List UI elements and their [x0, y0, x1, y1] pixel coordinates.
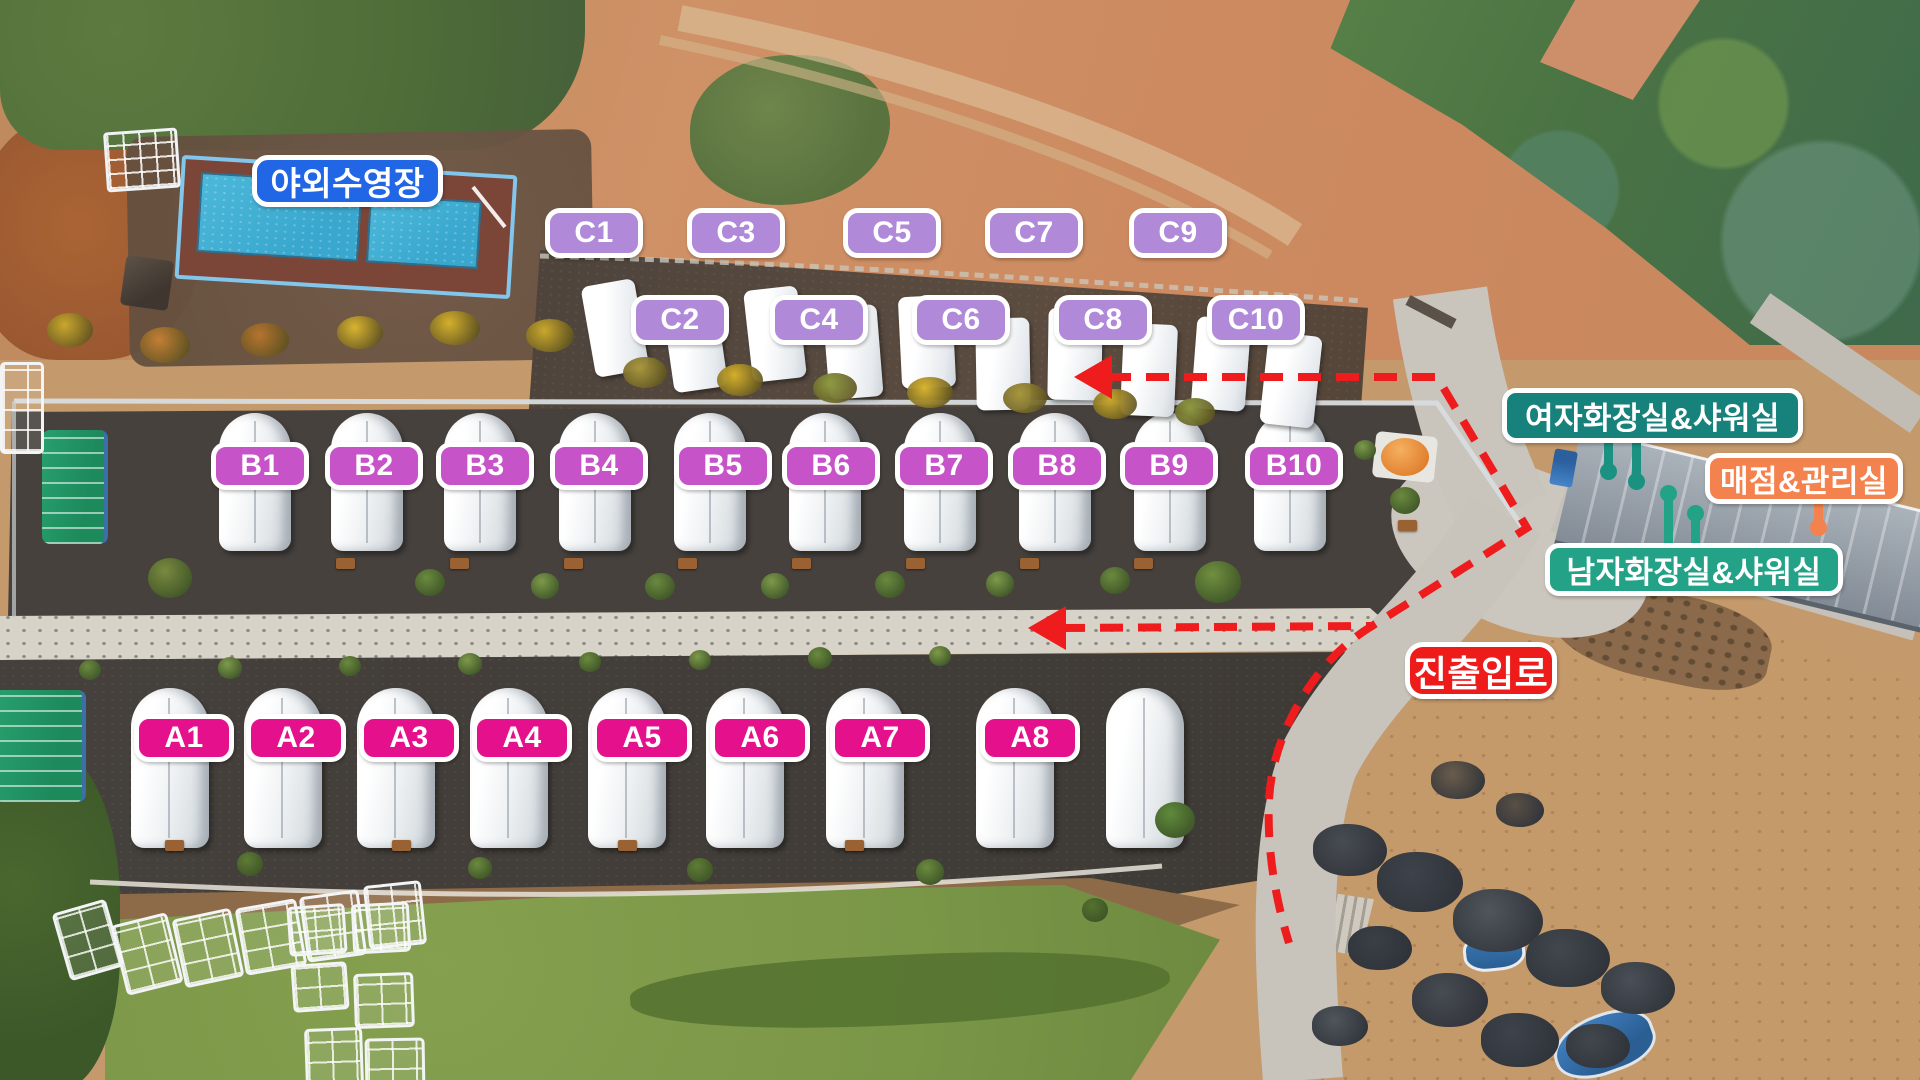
picnic-table-b1: [450, 558, 469, 569]
green-quonset-building-lower: [0, 690, 86, 802]
site-badge-c7: C7: [985, 208, 1083, 258]
outdoor-pool-badge: 야외수영장: [252, 155, 443, 207]
yellow-tree-8: [813, 373, 857, 403]
site-badge-c9: C9: [1129, 208, 1227, 258]
pergola-frame: [103, 127, 181, 192]
green-tree-17: [237, 852, 263, 875]
green-tree-9: [79, 660, 101, 680]
storage-shed: [120, 255, 174, 311]
yellow-tree-12: [1175, 398, 1215, 426]
connector-men-1-dot: [1660, 485, 1677, 502]
tent-a7: [826, 688, 904, 848]
tent-a1: [131, 688, 209, 848]
stored-frame-8: [290, 961, 349, 1013]
yellow-tree-1: [140, 327, 190, 363]
campground-aerial-map: 야외수영장 A1A2A3A4A5A6A7A8B1B2B3B4B5B6B7B8B9…: [0, 0, 1920, 1080]
store-office-badge: 매점&관리실: [1705, 453, 1903, 504]
green-tree-6: [986, 571, 1014, 596]
shore-rock-3: [1526, 929, 1610, 988]
green-tree-16: [929, 646, 951, 666]
picnic-table-b5: [906, 558, 925, 569]
yellow-tree-5: [526, 319, 574, 352]
site-badge-b3: B3: [436, 442, 534, 490]
site-badge-a7: A7: [830, 714, 930, 762]
tent-a5: [588, 688, 666, 848]
yellow-tree-2: [241, 323, 289, 357]
picnic-table-b6: [1020, 558, 1039, 569]
site-badge-c10: C10: [1207, 295, 1305, 345]
picnic-table-a2: [618, 840, 637, 851]
site-badge-a5: A5: [592, 714, 692, 762]
picnic-table-a3: [845, 840, 864, 851]
green-tree-12: [458, 653, 482, 675]
stored-frame-left-edge: [0, 362, 44, 454]
tent-a3: [357, 688, 435, 848]
orange-dome-tent: [1381, 438, 1429, 476]
men-restroom-badge: 남자화장실&샤워실: [1545, 543, 1843, 596]
connector-women-2-dot: [1628, 473, 1645, 490]
green-tree-23: [1354, 440, 1376, 460]
site-badge-c3: C3: [687, 208, 785, 258]
picnic-table-b7: [1134, 558, 1153, 569]
tent-a8: [976, 688, 1054, 848]
yellow-tree-3: [337, 316, 383, 349]
site-badge-a4: A4: [472, 714, 572, 762]
connector-store-dot: [1810, 519, 1827, 536]
picnic-table-b2: [564, 558, 583, 569]
site-badge-c5: C5: [843, 208, 941, 258]
site-badge-c1: C1: [545, 208, 643, 258]
green-tree-5: [875, 571, 905, 598]
yellow-tree-0: [47, 313, 93, 347]
green-tree-3: [645, 573, 675, 600]
site-badge-a3: A3: [359, 714, 459, 762]
yellow-tree-11: [1093, 389, 1137, 419]
picnic-table-a0: [165, 840, 184, 851]
green-tree-19: [687, 858, 713, 881]
tent-a4: [470, 688, 548, 848]
site-badge-b4: B4: [550, 442, 648, 490]
women-restroom-badge: 여자화장실&샤워실: [1502, 388, 1803, 443]
shore-rock-10: [1431, 761, 1485, 799]
site-badge-a6: A6: [710, 714, 810, 762]
green-tree-4: [761, 573, 789, 598]
yellow-tree-9: [907, 377, 953, 408]
stored-frame-11: [365, 1037, 426, 1080]
site-badge-a1: A1: [134, 714, 234, 762]
shore-rock-11: [1496, 793, 1544, 827]
green-tree-2: [531, 573, 559, 598]
connector-men-2-dot: [1687, 505, 1704, 522]
yellow-tree-6: [623, 357, 667, 388]
picnic-table-b0: [336, 558, 355, 569]
picnic-table-b4: [792, 558, 811, 569]
yellow-tree-7: [717, 364, 763, 396]
green-quonset-building-upper: [42, 430, 108, 544]
green-tree-0: [148, 558, 192, 598]
green-tree-14: [689, 650, 711, 670]
tent-a2: [244, 688, 322, 848]
shore-rock-7: [1481, 1013, 1559, 1068]
green-tree-22: [1390, 487, 1420, 514]
green-tree-15: [808, 647, 832, 669]
stored-frame-7: [351, 902, 412, 955]
green-tree-8: [1195, 561, 1241, 602]
green-tree-7: [1100, 567, 1130, 594]
site-badge-c6: C6: [912, 295, 1010, 345]
site-badge-c4: C4: [770, 295, 868, 345]
green-tree-18: [468, 857, 492, 879]
site-badge-b7: B7: [895, 442, 993, 490]
entrance-road-badge: 진출입로: [1405, 642, 1557, 699]
shore-rock-9: [1566, 1024, 1630, 1069]
shore-rock-5: [1348, 926, 1412, 971]
picnic-table-junction: [1398, 520, 1417, 531]
green-tree-13: [579, 652, 601, 672]
green-tree-1: [415, 569, 445, 596]
tent-c10: [1259, 331, 1323, 428]
yellow-tree-4: [430, 311, 480, 345]
green-tree-11: [339, 656, 361, 676]
yellow-tree-10: [1003, 383, 1047, 413]
green-tree-20: [916, 859, 944, 884]
shore-rock-0: [1313, 824, 1387, 876]
site-badge-c2: C2: [631, 295, 729, 345]
green-tree-24: [1082, 898, 1108, 921]
shore-rock-4: [1601, 962, 1675, 1014]
picnic-table-b3: [678, 558, 697, 569]
forest-top-left: [0, 0, 585, 150]
site-badge-b1: B1: [211, 442, 309, 490]
site-badge-b6: B6: [782, 442, 880, 490]
picnic-table-a1: [392, 840, 411, 851]
site-badge-b5: B5: [674, 442, 772, 490]
connector-women-1-dot: [1600, 463, 1617, 480]
shore-rock-6: [1412, 973, 1488, 1026]
site-badge-c8: C8: [1054, 295, 1152, 345]
site-badge-b10: B10: [1245, 442, 1343, 490]
site-badge-b8: B8: [1008, 442, 1106, 490]
green-tree-21: [1155, 802, 1195, 838]
green-tree-10: [218, 657, 242, 679]
tent-a6: [706, 688, 784, 848]
stored-frame-10: [304, 1027, 364, 1080]
stored-frame-6: [286, 903, 347, 957]
site-badge-a8: A8: [980, 714, 1080, 762]
site-badge-b2: B2: [325, 442, 423, 490]
shore-rock-1: [1377, 852, 1463, 912]
shore-rock-8: [1312, 1006, 1368, 1045]
stored-frame-9: [353, 972, 415, 1029]
site-badge-a2: A2: [246, 714, 346, 762]
site-badge-b9: B9: [1120, 442, 1218, 490]
